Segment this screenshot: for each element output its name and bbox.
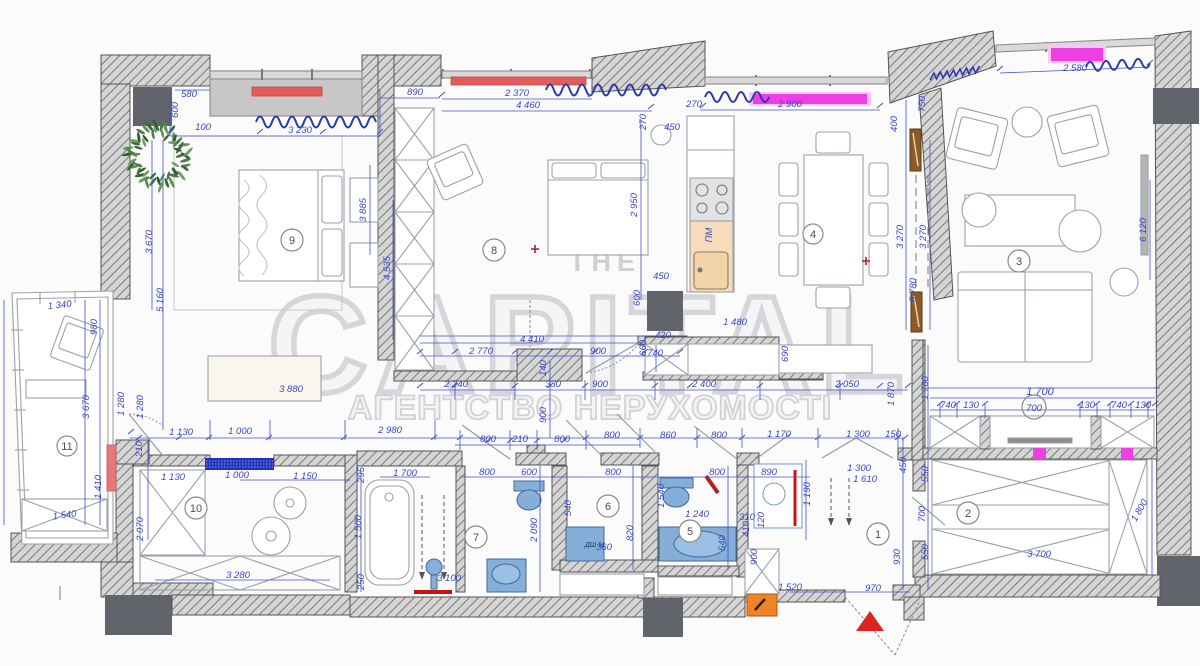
svg-text:3 230: 3 230 (288, 125, 312, 136)
svg-text:700: 700 (917, 505, 928, 522)
svg-text:3: 3 (1016, 256, 1022, 268)
svg-text:980: 980 (89, 318, 100, 335)
svg-text:740: 740 (940, 400, 957, 411)
svg-text:890: 890 (407, 87, 424, 98)
svg-text:8: 8 (491, 245, 497, 257)
svg-text:150: 150 (885, 429, 902, 440)
svg-text:1 190: 1 190 (802, 481, 813, 505)
svg-text:3 270: 3 270 (895, 224, 906, 248)
svg-text:450: 450 (653, 271, 670, 282)
svg-text:4 410: 4 410 (520, 334, 544, 345)
svg-text:1 300: 1 300 (846, 429, 870, 440)
svg-text:2 770: 2 770 (468, 346, 493, 357)
svg-text:140: 140 (538, 359, 549, 376)
svg-text:800: 800 (480, 434, 497, 445)
svg-text:660: 660 (638, 339, 649, 356)
svg-text:5 160: 5 160 (155, 287, 166, 311)
svg-text:10: 10 (190, 503, 202, 515)
svg-text:800: 800 (605, 467, 622, 478)
svg-text:1 300: 1 300 (847, 463, 871, 474)
svg-text:2: 2 (965, 508, 971, 520)
svg-text:800: 800 (554, 434, 571, 445)
svg-text:130: 130 (1135, 400, 1152, 411)
svg-text:1 610: 1 610 (853, 474, 877, 485)
svg-text:1 150: 1 150 (293, 471, 317, 482)
svg-text:540: 540 (563, 499, 574, 516)
svg-text:1 000: 1 000 (228, 426, 252, 437)
svg-text:1 280: 1 280 (116, 391, 127, 415)
svg-text:330: 330 (545, 379, 562, 390)
svg-text:860: 860 (660, 430, 677, 441)
svg-text:1 540: 1 540 (656, 483, 667, 507)
svg-text:3 100: 3 100 (437, 573, 461, 584)
svg-text:740: 740 (1111, 400, 1128, 411)
svg-text:550: 550 (920, 465, 931, 482)
svg-text:1 870: 1 870 (886, 381, 897, 405)
svg-text:400: 400 (889, 115, 900, 132)
svg-text:410: 410 (741, 520, 752, 537)
svg-text:ПМ: ПМ (704, 228, 715, 243)
svg-text:1 700: 1 700 (393, 468, 417, 479)
svg-text:2 090: 2 090 (529, 517, 540, 542)
svg-text:3 280: 3 280 (226, 570, 250, 581)
svg-text:3 880: 3 880 (279, 384, 303, 395)
svg-text:900: 900 (590, 346, 607, 357)
svg-text:2 980: 2 980 (377, 425, 402, 436)
svg-text:130: 130 (963, 400, 980, 411)
svg-text:295: 295 (356, 466, 367, 484)
svg-text:550: 550 (920, 543, 931, 560)
svg-text:АГЕНТСТВО НЕРУХОМОСТІ: АГЕНТСТВО НЕРУХОМОСТІ (348, 389, 832, 427)
svg-text:1 170: 1 170 (767, 429, 791, 440)
svg-text:1 500: 1 500 (353, 514, 364, 538)
svg-text:1 480: 1 480 (723, 317, 747, 328)
svg-text:130: 130 (1079, 400, 1096, 411)
svg-text:900: 900 (592, 379, 609, 390)
svg-text:250: 250 (356, 573, 367, 591)
svg-text:820: 820 (625, 524, 636, 541)
svg-text:1 240: 1 240 (685, 509, 709, 520)
svg-text:930: 930 (892, 548, 903, 565)
svg-text:800: 800 (709, 467, 726, 478)
svg-text:450: 450 (898, 456, 909, 473)
svg-text:1: 1 (875, 529, 881, 541)
svg-text:2 400: 2 400 (691, 379, 716, 390)
svg-text:1 520: 1 520 (778, 582, 802, 593)
svg-text:700: 700 (1026, 403, 1043, 414)
svg-text:11: 11 (61, 441, 72, 453)
svg-text:360: 360 (596, 542, 613, 553)
svg-text:6: 6 (605, 501, 611, 513)
svg-text:270: 270 (638, 113, 649, 131)
svg-text:120: 120 (756, 511, 767, 528)
svg-text:1 130: 1 130 (169, 427, 193, 438)
svg-text:800: 800 (711, 430, 728, 441)
svg-text:3 670: 3 670 (144, 229, 155, 253)
svg-text:1 000: 1 000 (225, 470, 249, 481)
svg-text:2 240: 2 240 (443, 379, 468, 390)
svg-text:4 535: 4 535 (382, 255, 393, 279)
svg-text:900: 900 (749, 548, 760, 565)
svg-text:580: 580 (181, 89, 198, 100)
svg-text:210: 210 (511, 434, 529, 445)
svg-text:2 370: 2 370 (504, 88, 529, 99)
svg-text:2 580: 2 580 (1062, 63, 1087, 74)
svg-text:9: 9 (289, 235, 295, 247)
svg-text:2 950: 2 950 (629, 192, 640, 217)
svg-text:2 050: 2 050 (834, 379, 859, 390)
svg-text:3 700: 3 700 (1027, 549, 1051, 560)
svg-text:1 130: 1 130 (161, 472, 185, 483)
svg-text:600: 600 (521, 467, 538, 478)
svg-text:4: 4 (810, 229, 816, 241)
svg-text:800: 800 (604, 430, 621, 441)
svg-text:690: 690 (780, 345, 791, 362)
svg-text:5: 5 (687, 526, 693, 538)
svg-text:6 120: 6 120 (1138, 217, 1149, 241)
svg-text:970: 970 (865, 583, 882, 594)
svg-text:3 670: 3 670 (81, 394, 92, 418)
svg-text:890: 890 (761, 467, 778, 478)
svg-text:3 885: 3 885 (358, 197, 369, 221)
svg-text:600: 600 (170, 101, 181, 118)
svg-text:270: 270 (685, 99, 703, 110)
svg-text:2 070: 2 070 (135, 516, 146, 541)
svg-text:4 460: 4 460 (516, 100, 540, 111)
svg-text:740: 740 (647, 348, 664, 359)
svg-text:420: 420 (655, 330, 672, 341)
svg-text:1 410: 1 410 (93, 474, 104, 498)
svg-text:450: 450 (664, 122, 681, 133)
svg-text:600: 600 (632, 289, 643, 306)
svg-text:1 760: 1 760 (920, 375, 931, 399)
svg-text:7: 7 (473, 532, 479, 544)
svg-text:5 780: 5 780 (908, 277, 919, 301)
svg-text:2 900: 2 900 (777, 99, 802, 110)
svg-text:900: 900 (538, 406, 549, 423)
svg-text:3 270: 3 270 (918, 224, 929, 248)
svg-text:210: 210 (134, 440, 145, 458)
svg-text:100: 100 (195, 122, 212, 133)
svg-text:750: 750 (917, 95, 928, 112)
svg-text:540: 540 (717, 534, 728, 551)
svg-text:1 280: 1 280 (135, 394, 146, 418)
svg-text:800: 800 (479, 467, 496, 478)
